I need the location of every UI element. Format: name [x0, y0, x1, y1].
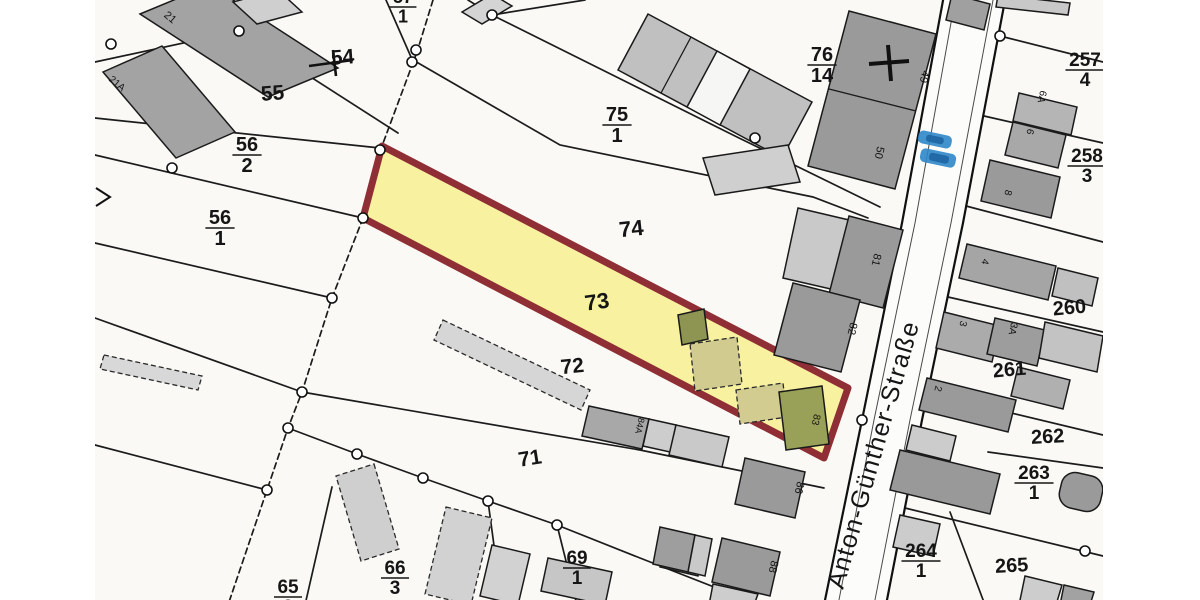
fraction-denominator-14: 14 [811, 65, 834, 87]
fraction-denominator-1: 1 [611, 125, 622, 147]
parcel-label-265: 265 [994, 554, 1028, 578]
parcel-label-261: 261 [992, 358, 1027, 383]
fraction-denominator-3: 3 [390, 578, 401, 599]
parcel-label-262: 262 [1030, 425, 1064, 449]
parcel-label-74: 74 [618, 215, 646, 243]
outbuilding-khaki-1 [690, 337, 742, 391]
fraction-numerator-76: 76 [811, 44, 833, 66]
fraction-numerator-257: 257 [1069, 50, 1101, 71]
outbuilding-khaki-2 [736, 383, 787, 424]
fraction-numerator-75: 75 [606, 104, 628, 126]
fraction-numerator-56: 56 [209, 207, 231, 229]
fraction-denominator-1: 1 [214, 228, 225, 250]
fraction-denominator-1: 1 [398, 6, 408, 26]
fraction-denominator-2: 2 [241, 155, 252, 177]
fraction-numerator-263: 263 [1018, 463, 1050, 484]
fraction-denominator-4: 4 [1080, 70, 1091, 91]
fraction-denominator-1: 1 [572, 568, 583, 589]
map-canvas: 5455747372712602612622655625615717517614… [0, 0, 1200, 600]
fraction-numerator-66: 66 [384, 558, 405, 579]
scan-margin-right [1103, 0, 1200, 600]
fraction-denominator-1: 1 [1029, 483, 1040, 504]
fraction-denominator-1: 1 [916, 561, 927, 582]
fraction-numerator-56: 56 [236, 134, 258, 156]
fraction-numerator-264: 264 [905, 541, 937, 562]
outbuilding-olive-1 [678, 309, 708, 345]
fraction-numerator-258: 258 [1071, 146, 1103, 167]
fraction-numerator-69: 69 [566, 548, 587, 569]
parcel-label-55: 55 [260, 81, 285, 106]
parcel-label-260: 260 [1052, 296, 1087, 321]
parcel-label-72: 72 [560, 354, 586, 379]
fraction-denominator-3: 3 [1082, 166, 1093, 187]
fraction-numerator-65: 65 [277, 577, 299, 598]
cadastral-map-scan: 5455747372712602612622655625615717517614… [0, 0, 1200, 600]
parcel-label-73: 73 [583, 287, 611, 315]
parcel-label-54: 54 [330, 45, 355, 70]
scan-margin-left [0, 0, 95, 600]
parcel-label-71: 71 [517, 445, 544, 471]
